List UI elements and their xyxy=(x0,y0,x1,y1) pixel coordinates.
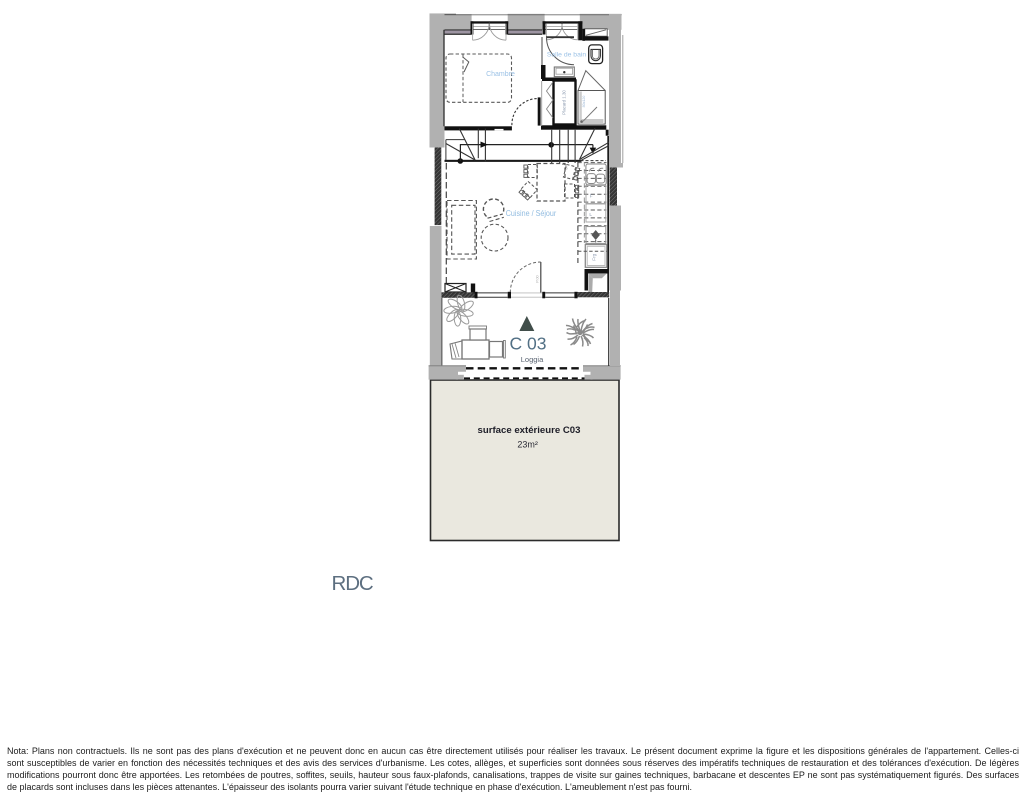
svg-text:Cuisine / Séjour: Cuisine / Séjour xyxy=(506,208,557,218)
svg-text:P.00: P.00 xyxy=(535,275,539,282)
svg-text:Loggia: Loggia xyxy=(521,355,544,364)
svg-text:L: L xyxy=(589,212,592,218)
svg-text:Frg: Frg xyxy=(592,253,597,260)
svg-text:Chambre: Chambre xyxy=(486,71,515,78)
svg-text:80x120: 80x120 xyxy=(582,96,586,108)
svg-text:C 03: C 03 xyxy=(510,334,547,354)
svg-text:Salle de bain: Salle de bain xyxy=(547,52,587,59)
svg-text:F: F xyxy=(590,194,593,200)
svg-text:surface extérieure C03: surface extérieure C03 xyxy=(478,425,581,436)
svg-text:23m²: 23m² xyxy=(517,439,538,449)
svg-text:Placard 1.30: Placard 1.30 xyxy=(562,90,567,115)
